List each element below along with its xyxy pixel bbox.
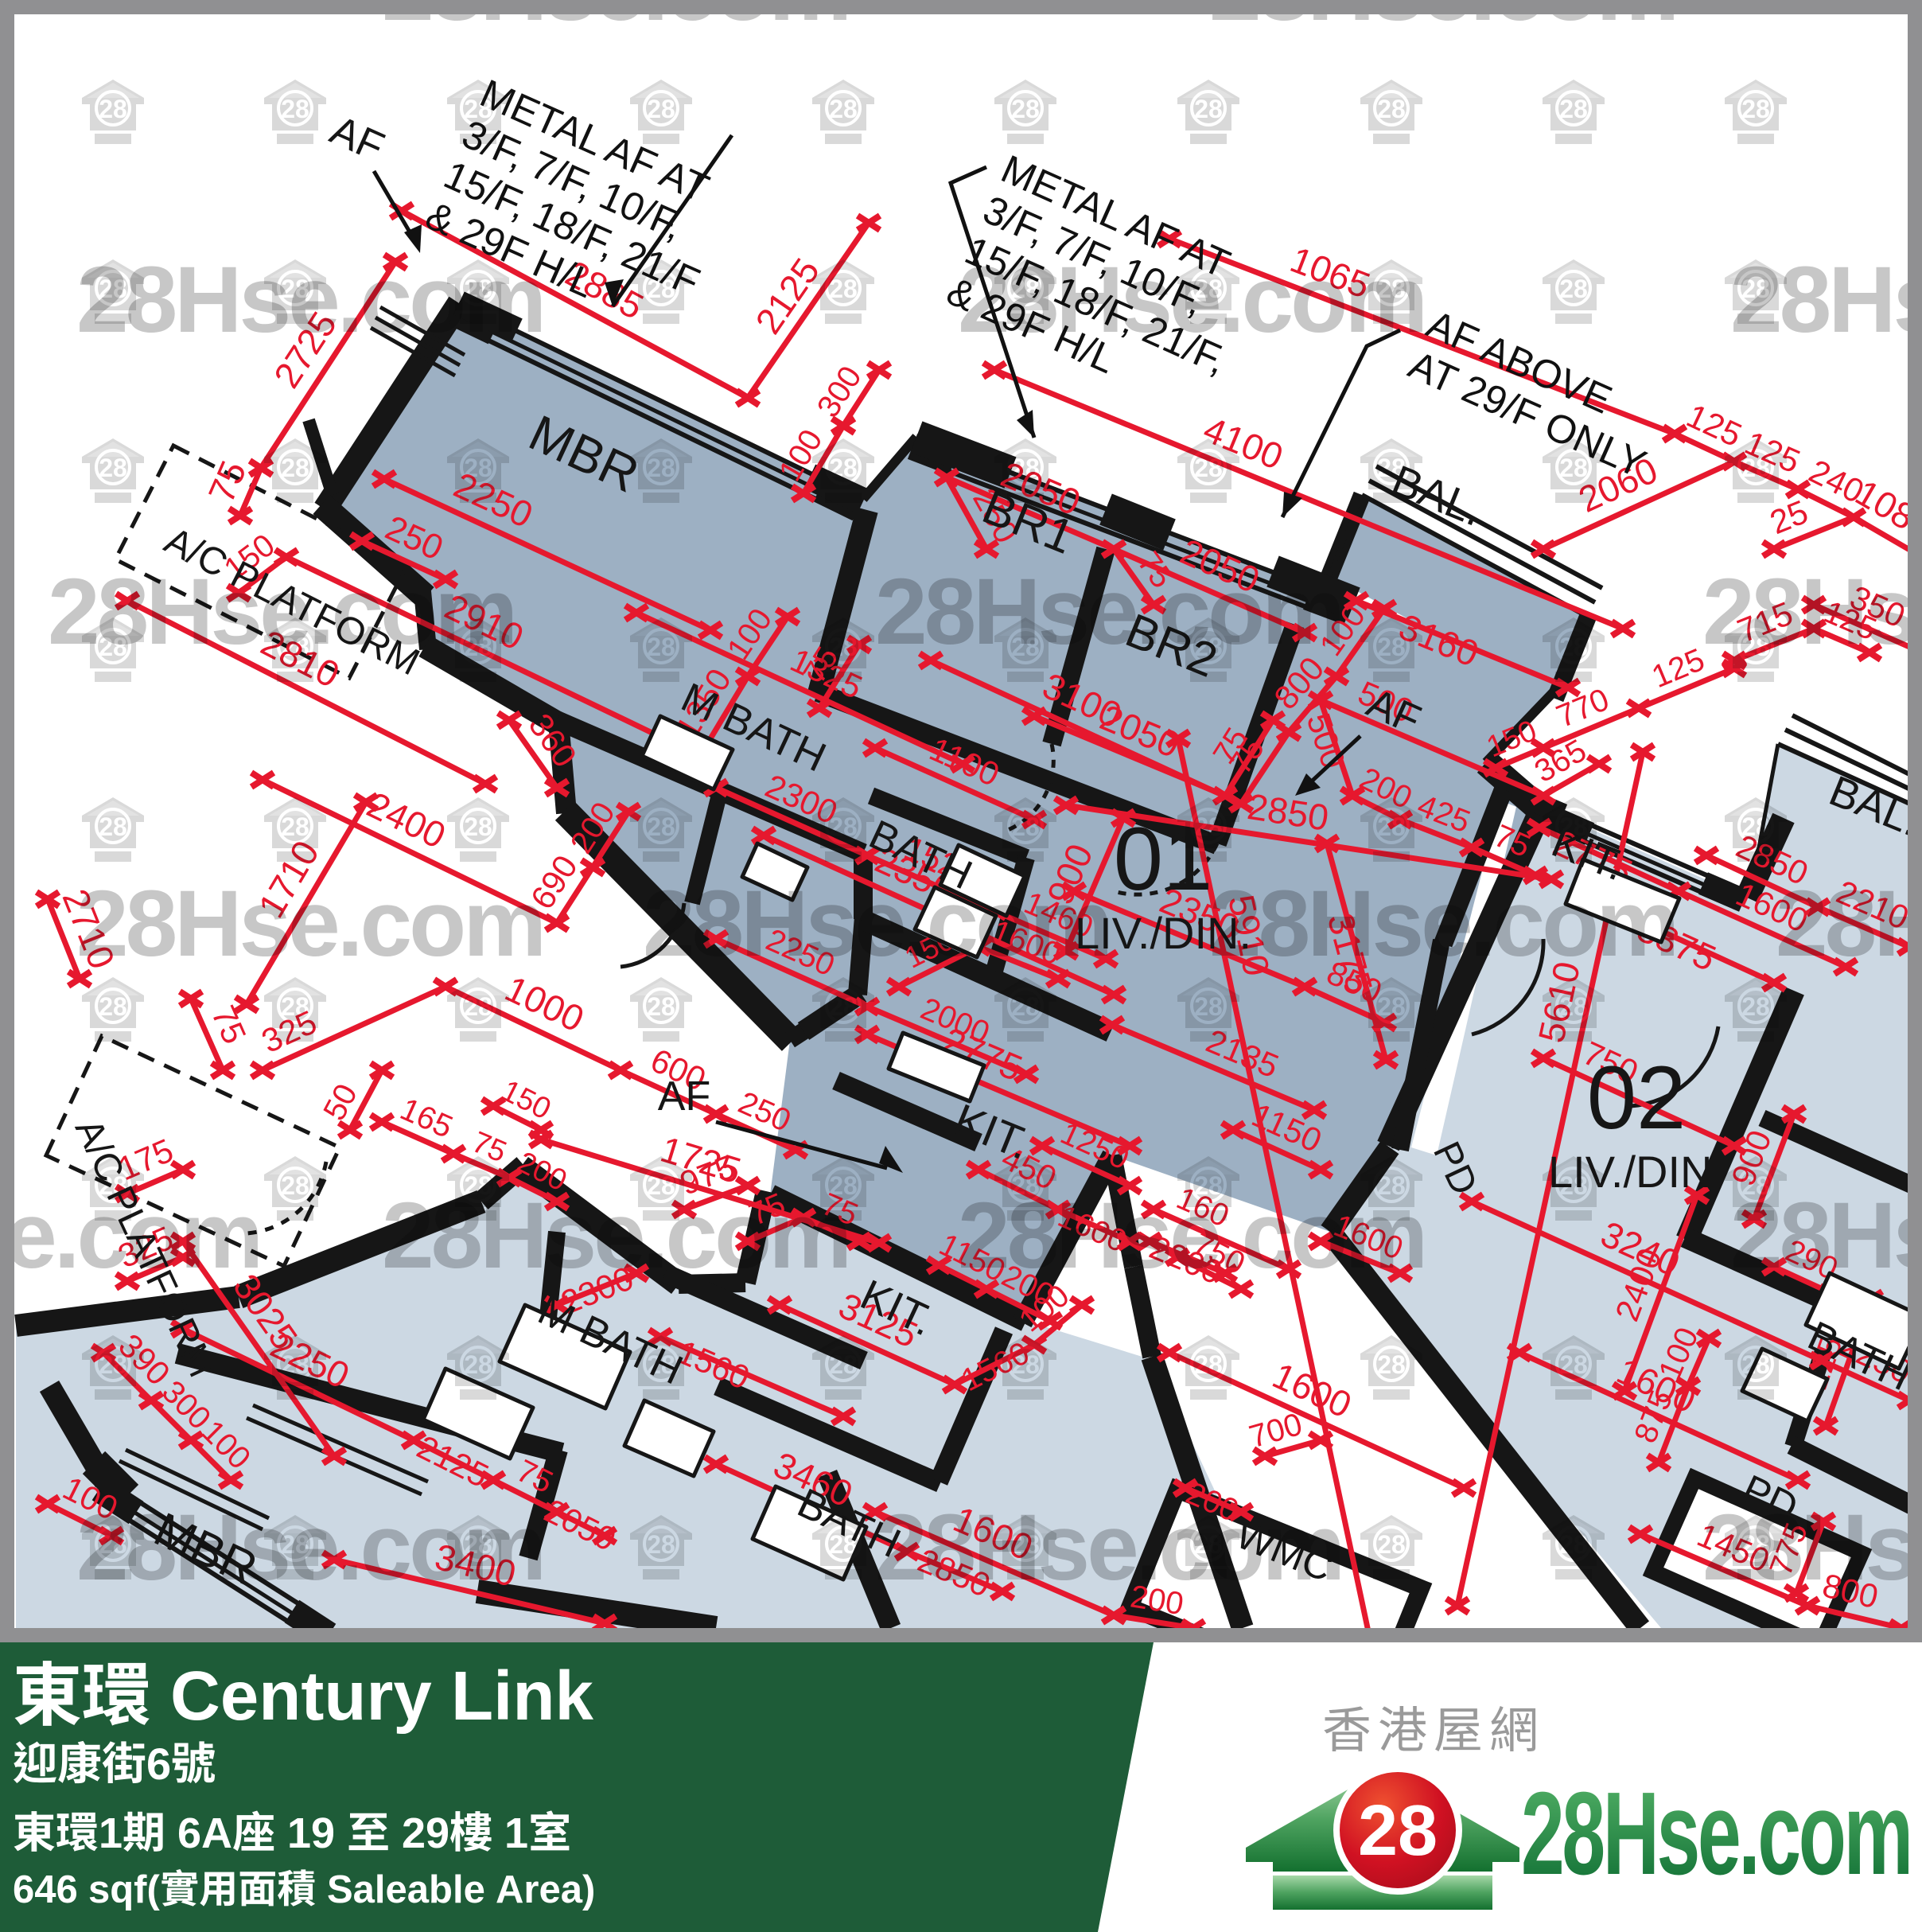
svg-text:28Hse.com: 28Hse.com (1702, 1495, 1922, 1600)
svg-text:28Hse.com: 28Hse.com (0, 1183, 260, 1288)
svg-text:1: 1 (504, 1809, 528, 1857)
svg-text:AF: AF (658, 1073, 710, 1120)
svg-text:28Hse.com: 28Hse.com (76, 1495, 543, 1600)
svg-text:02: 02 (1587, 1048, 1687, 1147)
svg-text:Area): Area) (496, 1868, 595, 1911)
svg-text:Link: Link (451, 1657, 593, 1735)
svg-text:28Hse.com: 28Hse.com (1521, 1767, 1911, 1899)
svg-text:28Hse.com: 28Hse.com (958, 247, 1425, 353)
svg-text:1: 1 (99, 1809, 123, 1857)
svg-text:28Hse.com: 28Hse.com (875, 1495, 1342, 1600)
svg-text:sqf(: sqf( (88, 1868, 161, 1911)
svg-text:28Hse.com: 28Hse.com (76, 871, 543, 976)
svg-text:28Hse.com: 28Hse.com (643, 871, 1110, 976)
svg-text:646: 646 (13, 1868, 78, 1911)
svg-text:28Hse.com: 28Hse.com (958, 1183, 1425, 1288)
svg-text:28Hse.com: 28Hse.com (1209, 871, 1676, 976)
svg-text:28Hse.com: 28Hse.com (76, 247, 543, 353)
svg-text:28: 28 (1358, 1791, 1438, 1871)
svg-text:28Hse.com: 28Hse.com (48, 559, 515, 664)
svg-text:28Hse.com: 28Hse.com (1776, 871, 1922, 976)
svg-text:6A: 6A (177, 1809, 232, 1857)
svg-text:Saleable: Saleable (327, 1868, 485, 1911)
svg-text:19: 19 (287, 1809, 335, 1857)
svg-text:28Hse.com: 28Hse.com (1730, 1183, 1922, 1288)
svg-text:Century: Century (170, 1657, 432, 1735)
svg-text:28Hse.com: 28Hse.com (875, 559, 1342, 664)
svg-text:29: 29 (402, 1809, 449, 1857)
svg-text:28Hse.com: 28Hse.com (1702, 559, 1922, 664)
svg-text:28Hse.com: 28Hse.com (382, 1183, 849, 1288)
svg-text:28Hse.com: 28Hse.com (1730, 247, 1922, 353)
svg-text:6: 6 (146, 1739, 171, 1789)
